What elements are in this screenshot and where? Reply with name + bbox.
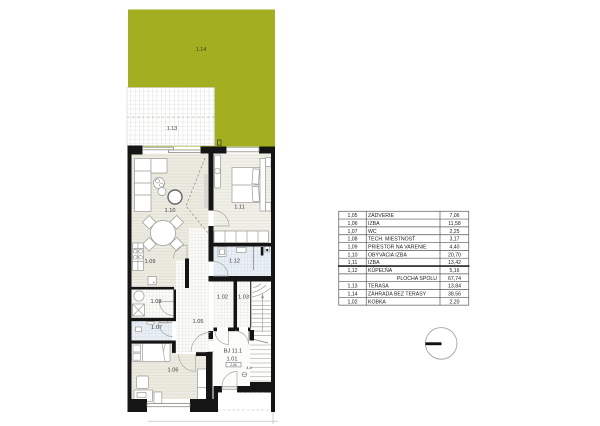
- svg-text:1,12: 1,12: [347, 268, 357, 274]
- svg-text:ZÁDVERIE: ZÁDVERIE: [368, 212, 394, 219]
- svg-text:2,25: 2,25: [449, 229, 459, 235]
- svg-text:5,16: 5,16: [449, 268, 459, 274]
- svg-text:PLOCHA SPOLU: PLOCHA SPOLU: [397, 276, 437, 282]
- svg-text:IZBA: IZBA: [368, 260, 380, 266]
- svg-text:3,17: 3,17: [449, 237, 459, 243]
- svg-text:WC: WC: [368, 229, 377, 235]
- svg-text:38,56: 38,56: [448, 291, 461, 297]
- svg-text:1.12: 1.12: [229, 258, 240, 264]
- svg-text:7,06: 7,06: [449, 213, 459, 219]
- svg-text:BJ 11.1: BJ 11.1: [224, 349, 243, 355]
- svg-text:4,4: 4,4: [246, 365, 252, 370]
- svg-text:1.13: 1.13: [167, 126, 178, 132]
- svg-text:ZÁHRADA BEZ TERASY: ZÁHRADA BEZ TERASY: [368, 290, 427, 297]
- svg-text:OBÝVACIA IZBA: OBÝVACIA IZBA: [368, 251, 407, 258]
- svg-text:PRIESTOR NA VARENIE: PRIESTOR NA VARENIE: [368, 245, 427, 251]
- svg-text:2,20: 2,20: [449, 299, 459, 305]
- svg-text:13,84: 13,84: [448, 284, 461, 290]
- svg-text:1,08: 1,08: [347, 237, 357, 243]
- svg-text:67,74: 67,74: [448, 276, 461, 282]
- svg-text:1,07: 1,07: [347, 229, 357, 235]
- svg-text:1.02: 1.02: [217, 295, 228, 301]
- svg-text:TECH. MIESTNOSŤ: TECH. MIESTNOSŤ: [368, 235, 416, 243]
- svg-text:1,13: 1,13: [347, 284, 357, 290]
- svg-text:1,10: 1,10: [347, 252, 357, 258]
- svg-text:TERASA: TERASA: [368, 284, 389, 290]
- svg-text:1.10: 1.10: [165, 208, 176, 214]
- svg-text:1,09: 1,09: [347, 245, 357, 251]
- svg-text:KOBKA: KOBKA: [368, 299, 386, 305]
- svg-text:1,02: 1,02: [347, 299, 357, 305]
- svg-text:13,42: 13,42: [448, 260, 461, 266]
- svg-text:1.03: 1.03: [238, 295, 249, 301]
- svg-text:1.01: 1.01: [227, 357, 238, 363]
- svg-text:1,14: 1,14: [347, 291, 357, 297]
- svg-text:1,06: 1,06: [347, 221, 357, 227]
- svg-text:1,05: 1,05: [347, 213, 357, 219]
- svg-text:1.06: 1.06: [168, 368, 179, 374]
- svg-text:2,66: 2,66: [230, 363, 237, 367]
- svg-text:11,58: 11,58: [448, 221, 461, 227]
- svg-text:4,40: 4,40: [449, 245, 459, 251]
- svg-text:IZBA: IZBA: [368, 221, 380, 227]
- svg-text:1.07: 1.07: [151, 325, 162, 331]
- svg-text:1.11: 1.11: [234, 205, 244, 211]
- svg-text:1.08: 1.08: [151, 299, 162, 305]
- svg-text:1.05: 1.05: [193, 319, 204, 325]
- svg-text:20,70: 20,70: [448, 252, 461, 258]
- svg-text:1.09: 1.09: [145, 259, 156, 265]
- svg-text:1.14: 1.14: [196, 47, 207, 53]
- svg-text:KÚPEĽŇA: KÚPEĽŇA: [368, 267, 393, 274]
- svg-text:1,11: 1,11: [348, 260, 358, 266]
